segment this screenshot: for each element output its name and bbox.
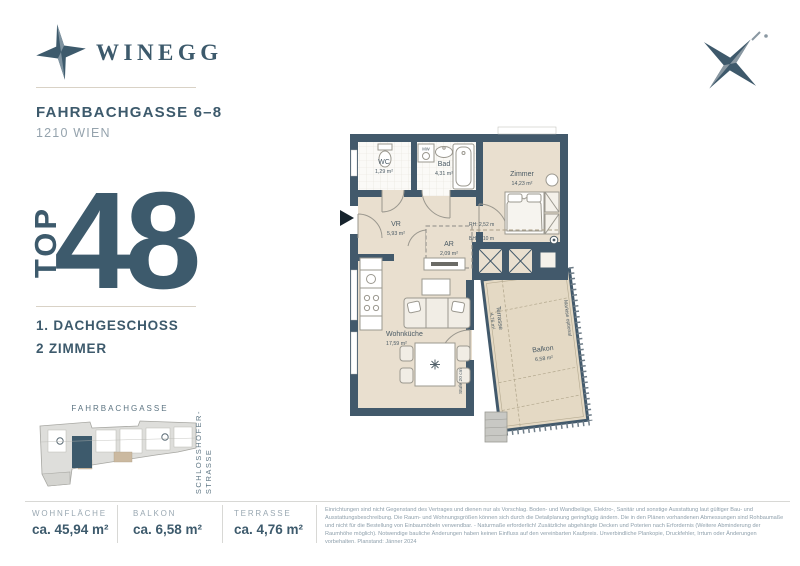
stats-top-line: [25, 501, 790, 502]
wohnkueche-label: Wohnküche: [386, 331, 423, 338]
svg-text:17,59 m²: 17,59 m²: [386, 341, 407, 347]
washing-machine: MW: [418, 144, 434, 162]
terrace-step: [485, 412, 507, 442]
step-annotation: Stufe 20 cm: [458, 368, 464, 394]
window: [351, 270, 357, 320]
stats-separator: [316, 505, 317, 543]
side-table: [546, 174, 558, 186]
stats-separator: [222, 505, 223, 543]
wc-label: WC: [378, 159, 390, 166]
svg-text:MW: MW: [422, 147, 429, 152]
ar-label: AR: [444, 241, 454, 248]
svg-text:2,09 m²: 2,09 m²: [440, 251, 458, 257]
coffee-table: [422, 279, 450, 295]
svg-text:5,93 m²: 5,93 m²: [387, 231, 405, 237]
sofa: [404, 298, 470, 328]
window: [351, 150, 357, 176]
floor-info: 1. DACHGESCHOSS 2 ZIMMER: [36, 315, 179, 361]
balcony-terrace: Terrasse 4,76 m² Balkon 6,58 m² Markise …: [482, 267, 590, 434]
stat-living-area: WOHNFLÄCHE ca. 45,94 m²: [32, 509, 109, 537]
svg-text:1,29 m²: 1,29 m²: [375, 169, 393, 175]
svg-text:4,31 m²: 4,31 m²: [435, 171, 453, 177]
bad-label: Bad: [438, 161, 451, 168]
brochure-page: WINEGG FAHRBACHGASSE 6–8 1210 WIEN TOP 4…: [0, 0, 800, 566]
svg-text:BH: 2,10 m: BH: 2,10 m: [469, 236, 494, 242]
bathtub: [453, 144, 474, 189]
stats-separator: [117, 505, 118, 543]
roof-niche: [498, 127, 556, 134]
siteplan-street-right: SCHLOSSHOFER- STRASSE: [194, 402, 214, 494]
unit-divider: [36, 306, 196, 307]
entrance-arrow-icon: [340, 210, 354, 226]
stat-terrace: TERRASSE ca. 4,76 m²: [234, 509, 303, 537]
zimmer-label: Zimmer: [510, 171, 534, 178]
header-divider: [36, 87, 196, 88]
kitchen-counter: [360, 258, 382, 330]
tv-board: [424, 258, 465, 270]
project-city: 1210 WIEN: [36, 126, 111, 140]
window: [351, 332, 357, 374]
winegg-star-icon: [34, 22, 88, 82]
svg-text:14,23 m²: 14,23 m²: [512, 181, 533, 187]
floor-plan: Terrasse 4,76 m² Balkon 6,58 m² Markise …: [338, 118, 683, 470]
north-compass-icon: [688, 16, 784, 102]
disclaimer-text: Einrichtungen sind nicht Gegenstand des …: [325, 506, 787, 547]
siteplan: [28, 412, 208, 502]
sink: [436, 147, 453, 158]
unit-number: 48: [54, 172, 196, 310]
stat-balcony: BALKON ca. 6,58 m²: [133, 509, 202, 537]
project-street: FAHRBACHGASSE 6–8: [36, 104, 222, 121]
brand-wordmark: WINEGG: [96, 40, 223, 66]
svg-text:RH: 2,52 m: RH: 2,52 m: [469, 222, 494, 228]
bed: [505, 192, 544, 234]
vr-label: VR: [391, 221, 401, 228]
vent-symbol: [550, 236, 558, 244]
room-count: 2 ZIMMER: [36, 338, 179, 361]
floor-level: 1. DACHGESCHOSS: [36, 315, 179, 338]
